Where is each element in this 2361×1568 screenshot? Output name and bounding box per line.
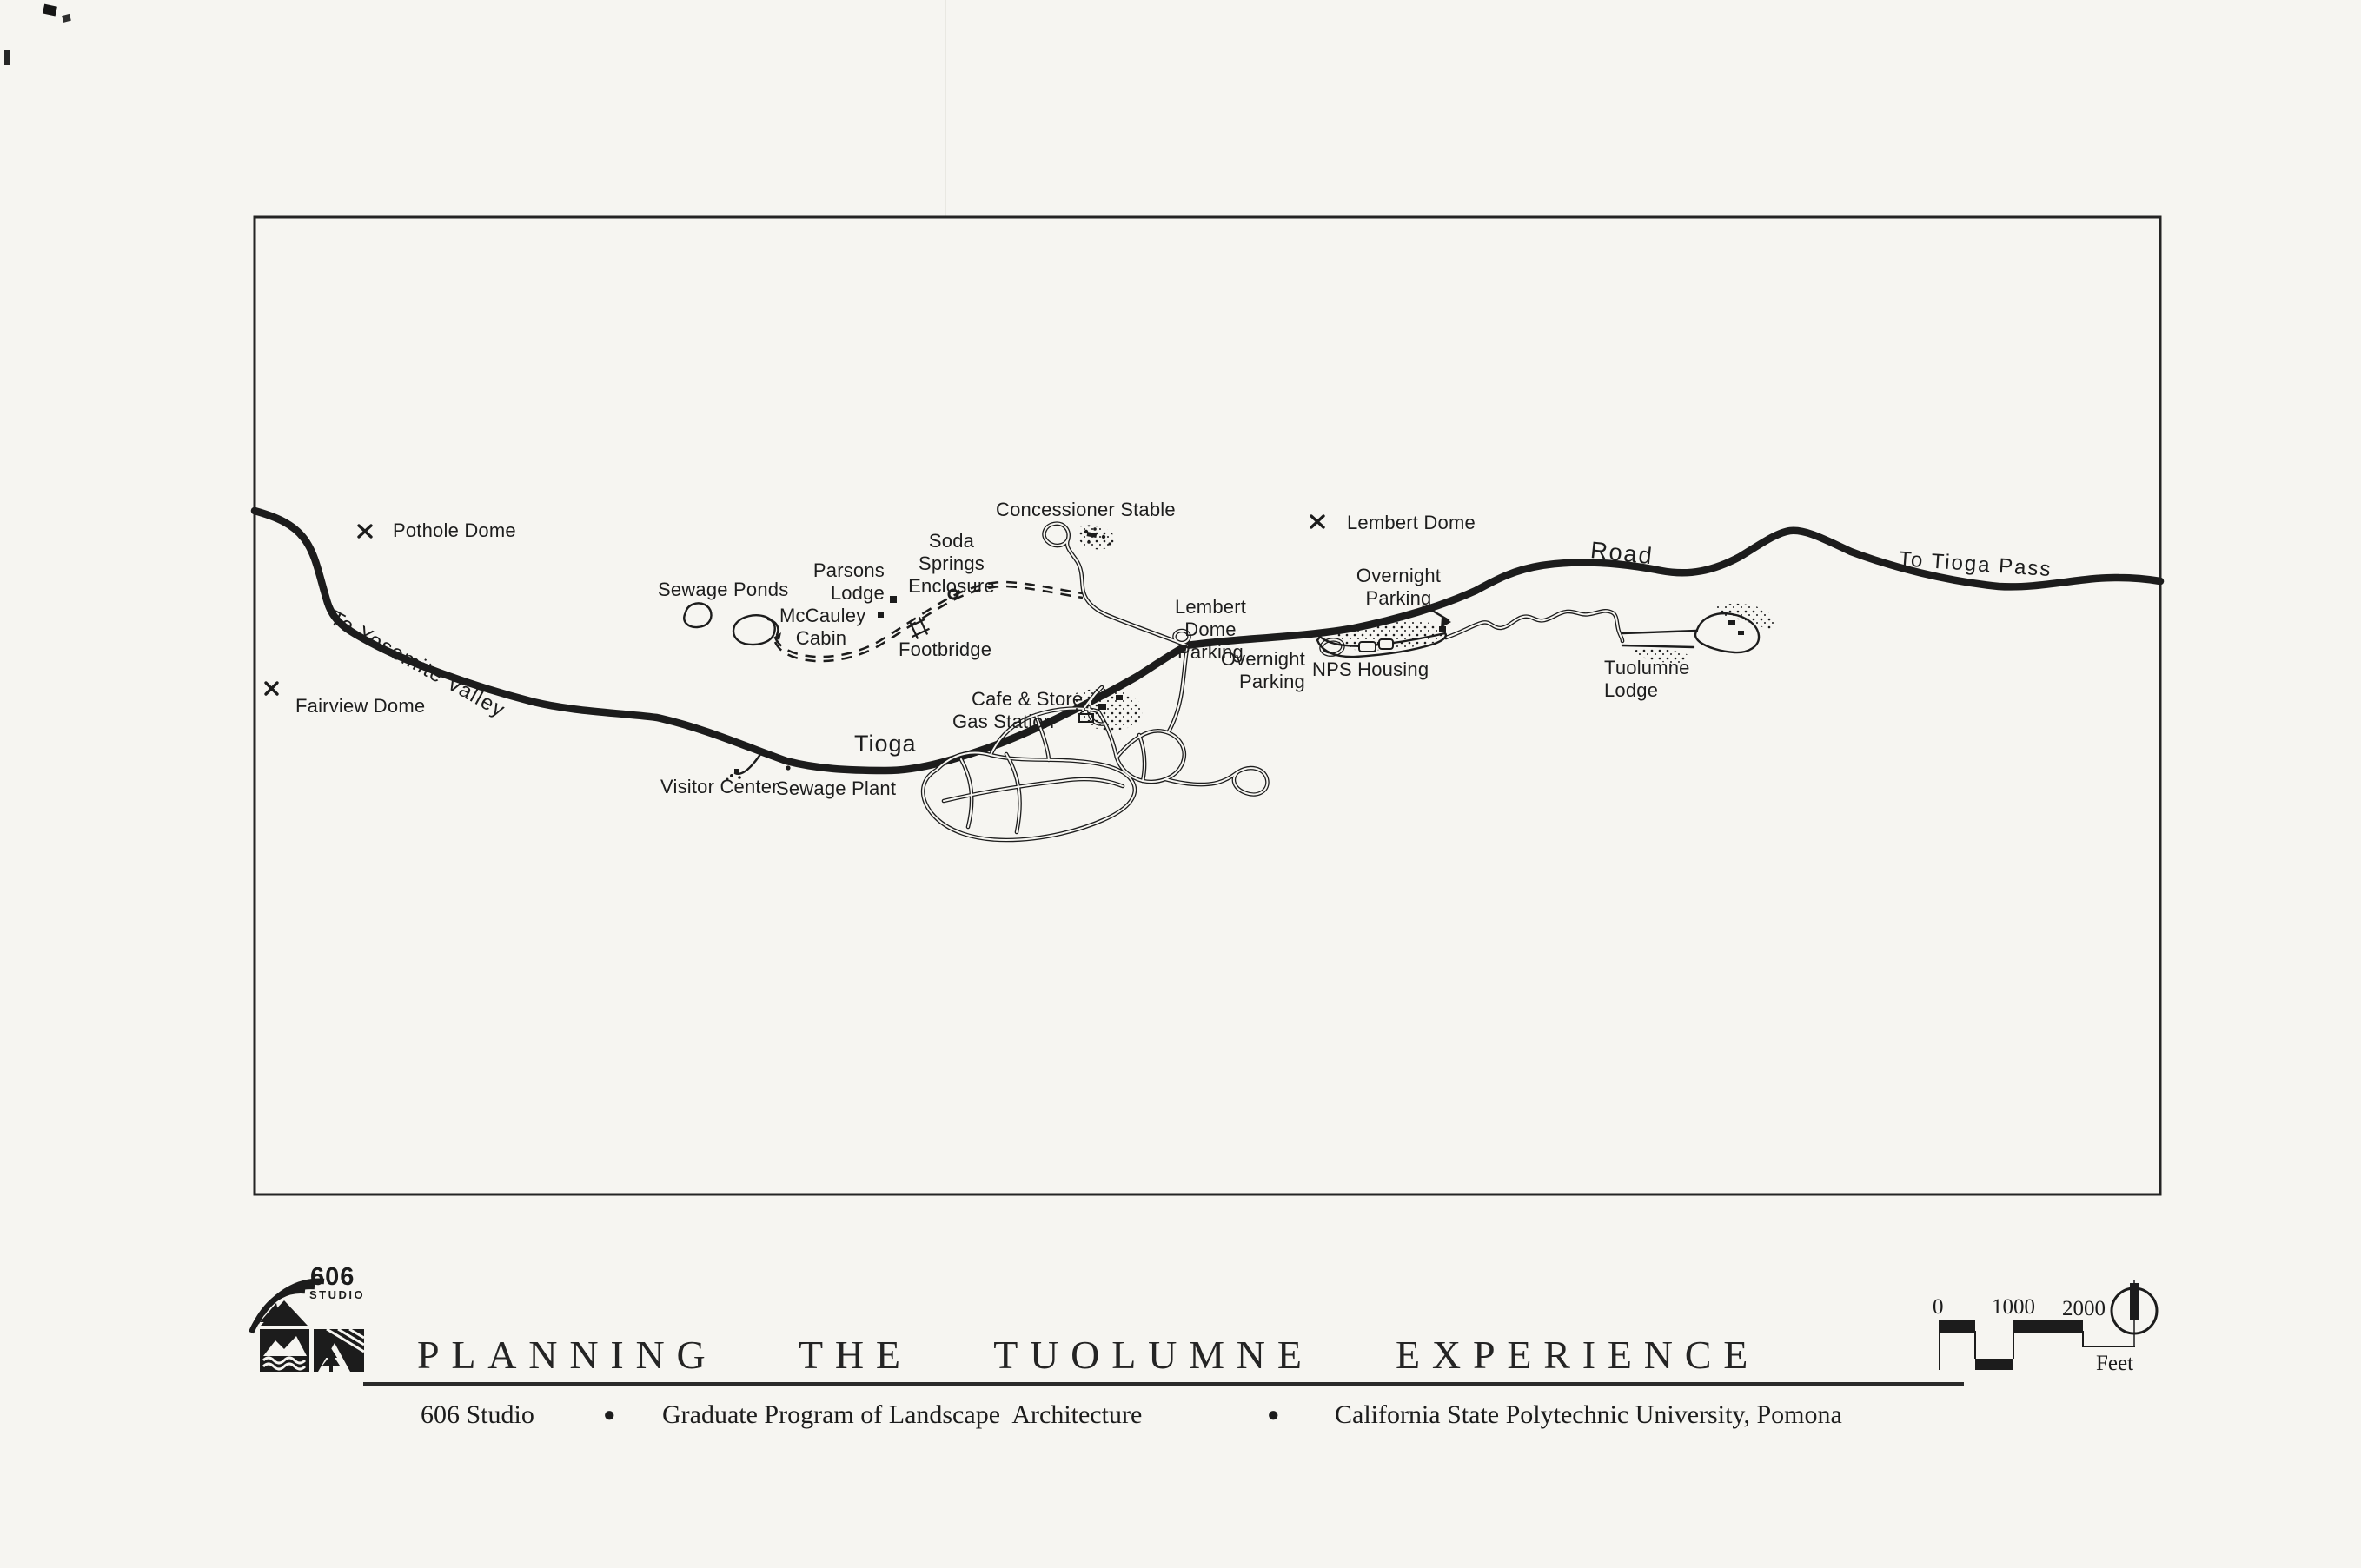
byline-program: Graduate Program of Landscape Architectu… — [662, 1400, 1142, 1430]
plate-title: PLANNING THE TUOLUMNE EXPERIENCE — [417, 1332, 1760, 1378]
byline-university: California State Polytechnic University,… — [1335, 1400, 1842, 1430]
title-rule — [363, 1382, 1964, 1386]
footbridge-symbol — [905, 615, 931, 640]
scale-tick-2000: 2000 — [2061, 1297, 2106, 1321]
byline-bullet-1: ● — [603, 1404, 616, 1427]
mccauley-cabin-symbol — [878, 612, 884, 618]
label-mccauley-cabin: McCauley Cabin — [779, 605, 863, 650]
label-sewage-ponds: Sewage Ponds — [658, 579, 788, 601]
label-footbridge: Footbridge — [899, 638, 991, 661]
scale-tick-1000: 1000 — [1991, 1295, 2036, 1320]
sewage-plant-symbol — [786, 765, 790, 770]
label-soda-springs-enclosure: Soda Springs Enclosure — [895, 530, 1008, 598]
label-visitor-center: Visitor Center — [660, 776, 779, 798]
label-lembert-dome: Lembert Dome — [1347, 512, 1476, 534]
north-arrow-icon — [2112, 1280, 2157, 1347]
scale-tick-0: 0 — [1933, 1295, 1944, 1320]
scanned-plan-page: Pothole Dome Fairview Dome To Yosemite V… — [0, 0, 2361, 1568]
label-pothole-dome: Pothole Dome — [393, 519, 516, 542]
label-overnight-parking-upper: Overnight Parking — [1349, 565, 1449, 610]
logo-word: STUDIO — [309, 1288, 365, 1301]
byline-studio: 606 Studio — [421, 1400, 534, 1430]
label-tioga: Tioga — [854, 731, 917, 758]
label-concessioner-stable: Concessioner Stable — [996, 499, 1176, 521]
scan-artifacts — [4, 0, 946, 217]
label-fairview-dome: Fairview Dome — [295, 695, 425, 718]
label-tuolumne-lodge: Tuolumne Lodge — [1604, 657, 1690, 702]
scale-unit: Feet — [2096, 1352, 2133, 1376]
x-marker-lembert-dome — [1311, 516, 1323, 527]
label-overnight-parking-lower: Overnight Parking — [1218, 648, 1305, 693]
x-marker-fairview-dome — [266, 683, 277, 694]
x-marker-pothole-dome — [359, 526, 371, 537]
byline-bullet-2: ● — [1267, 1404, 1280, 1427]
sewage-ponds-shapes — [684, 603, 774, 645]
label-cafe-store: Cafe & Store — [972, 688, 1083, 711]
label-sewage-plant: Sewage Plant — [776, 777, 896, 800]
label-nps-housing: NPS Housing — [1312, 658, 1429, 681]
label-gas-station: Gas Station — [952, 711, 1054, 733]
label-parsons-lodge: Parsons Lodge — [808, 559, 885, 605]
